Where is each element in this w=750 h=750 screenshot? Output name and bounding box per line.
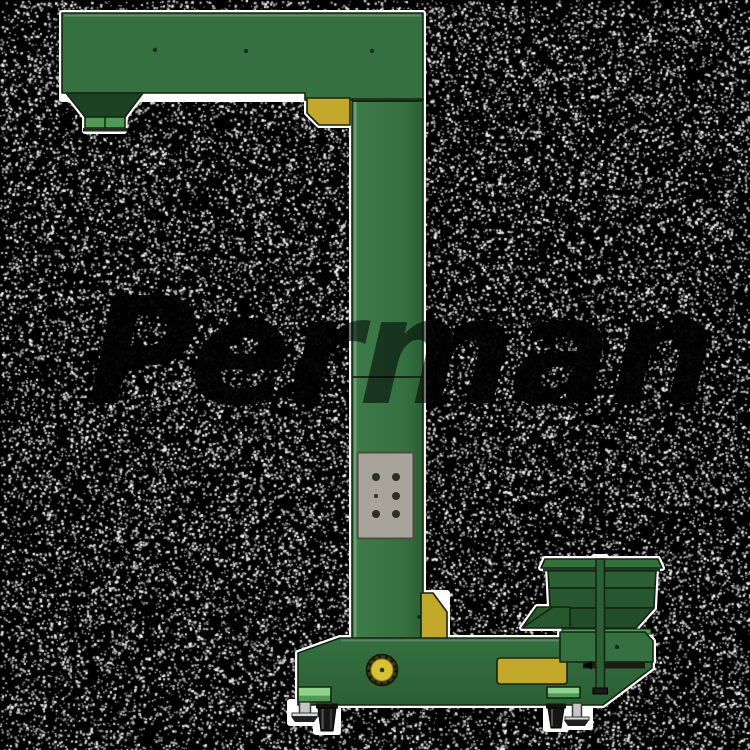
- panel-hole: [392, 492, 400, 500]
- hopper-chute: [522, 607, 570, 628]
- panel-hole: [392, 510, 400, 518]
- boom-bolt: [244, 49, 248, 53]
- panel-hole: [372, 510, 380, 518]
- boom-bolt: [370, 49, 374, 53]
- hopper-support-post: [596, 559, 605, 690]
- panel-hole: [374, 494, 378, 498]
- under-bar: [583, 663, 645, 669]
- bumper-strip-right: [547, 687, 580, 698]
- panel-hole: [392, 473, 400, 481]
- column-access-panel: [358, 453, 414, 539]
- watermark-text-over: Perman: [85, 278, 715, 426]
- boom-bolt: [153, 48, 157, 52]
- drive-pulley: [367, 655, 398, 686]
- panel-hole: [372, 473, 380, 481]
- nameplate: [497, 658, 567, 684]
- bumper-strip-left: [298, 687, 331, 702]
- top-boom: [62, 13, 423, 100]
- hopper-post-foot: [593, 688, 608, 694]
- hopper-lower-box: [560, 632, 653, 662]
- product-image: Perman: [0, 0, 750, 750]
